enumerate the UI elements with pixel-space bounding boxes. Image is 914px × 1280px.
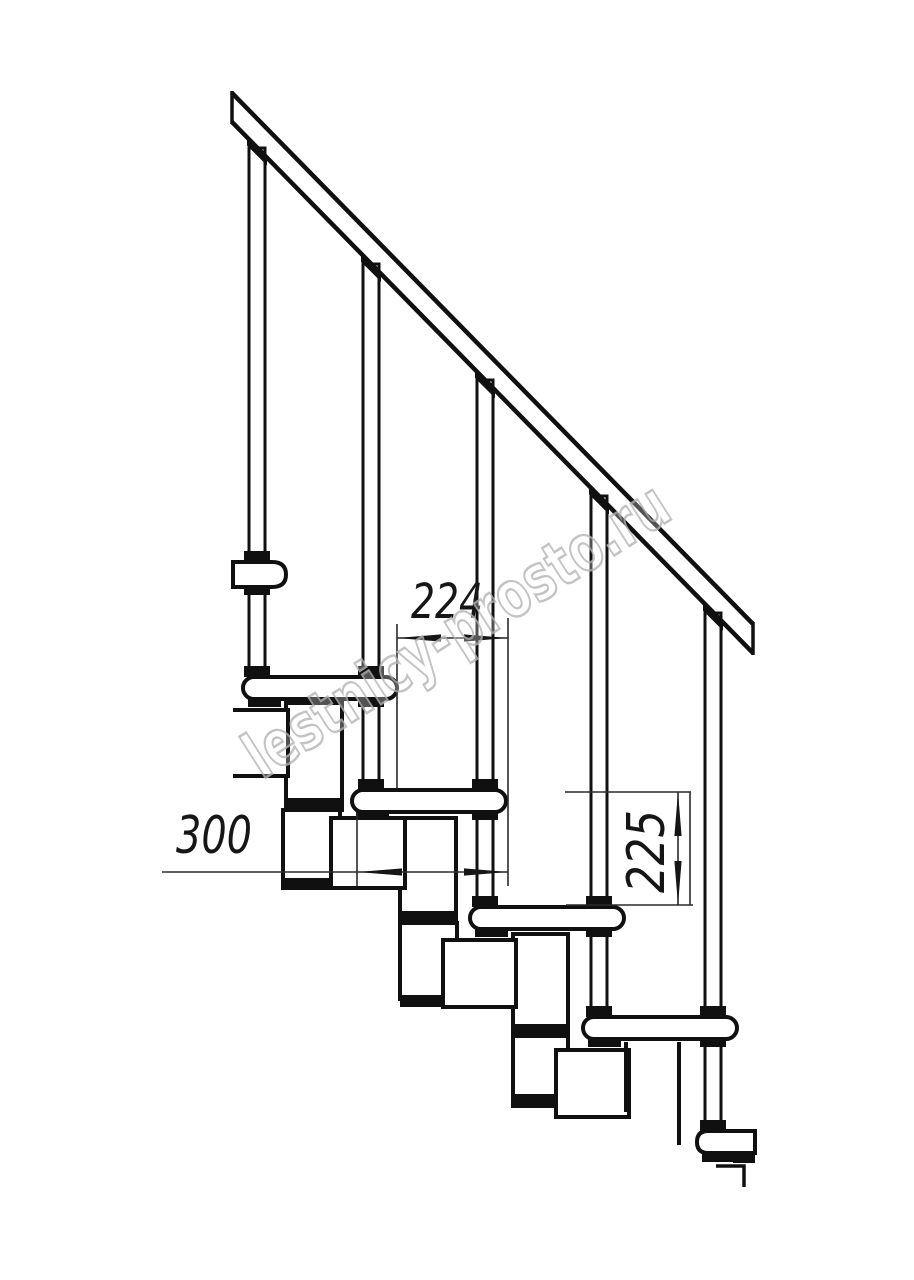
baluster-collar [244,551,270,562]
tread-cut-top [233,562,286,587]
dimension-label-225: 225 [617,810,677,893]
baluster-segment [705,613,721,1017]
module-tube-bar [513,1024,568,1036]
baluster-collar [472,896,498,907]
baluster-collar [472,779,498,790]
baluster-segment [249,587,265,677]
baluster-segment [477,812,493,907]
baluster-segment [249,148,265,562]
baluster-collar [700,1120,726,1131]
tread [470,907,624,929]
module-tube-bar [286,798,342,810]
module-clamp [475,929,508,937]
module-clamp [702,1153,736,1162]
baluster-collar [358,779,384,790]
module-clamp [733,1153,755,1163]
module-tube [513,934,568,1036]
module-clamp [356,812,389,820]
module-socket [331,818,405,888]
baluster-collar-under [586,929,612,937]
baluster-collar-under [244,587,270,595]
technical-drawing: 224 300 225 lestnicy-prosto.ru [0,0,914,1280]
watermark-text: lestnicy-prosto.ru [231,468,684,794]
bottom-step-outline [716,1166,744,1187]
module-socket [443,940,516,1007]
module-clamp [588,1039,621,1047]
tread [352,790,506,812]
module-socket [556,1050,629,1117]
baluster-segment [591,929,607,1017]
module-tube [400,818,456,923]
tread-cut-bottom [697,1131,755,1153]
baluster-collar [586,1006,612,1017]
baluster-collar-under [700,1039,726,1047]
tread [583,1017,737,1039]
baluster-collar-under [472,812,498,820]
staircase-elevation-canvas: 224 300 225 lestnicy-prosto.ru [0,0,914,1280]
baluster-segment [363,264,379,677]
baluster-collar [244,666,270,677]
baluster-segment [705,1039,721,1131]
module-tube-bar [400,911,456,923]
baluster-collar [700,1006,726,1017]
dimension-label-300: 300 [176,806,252,866]
